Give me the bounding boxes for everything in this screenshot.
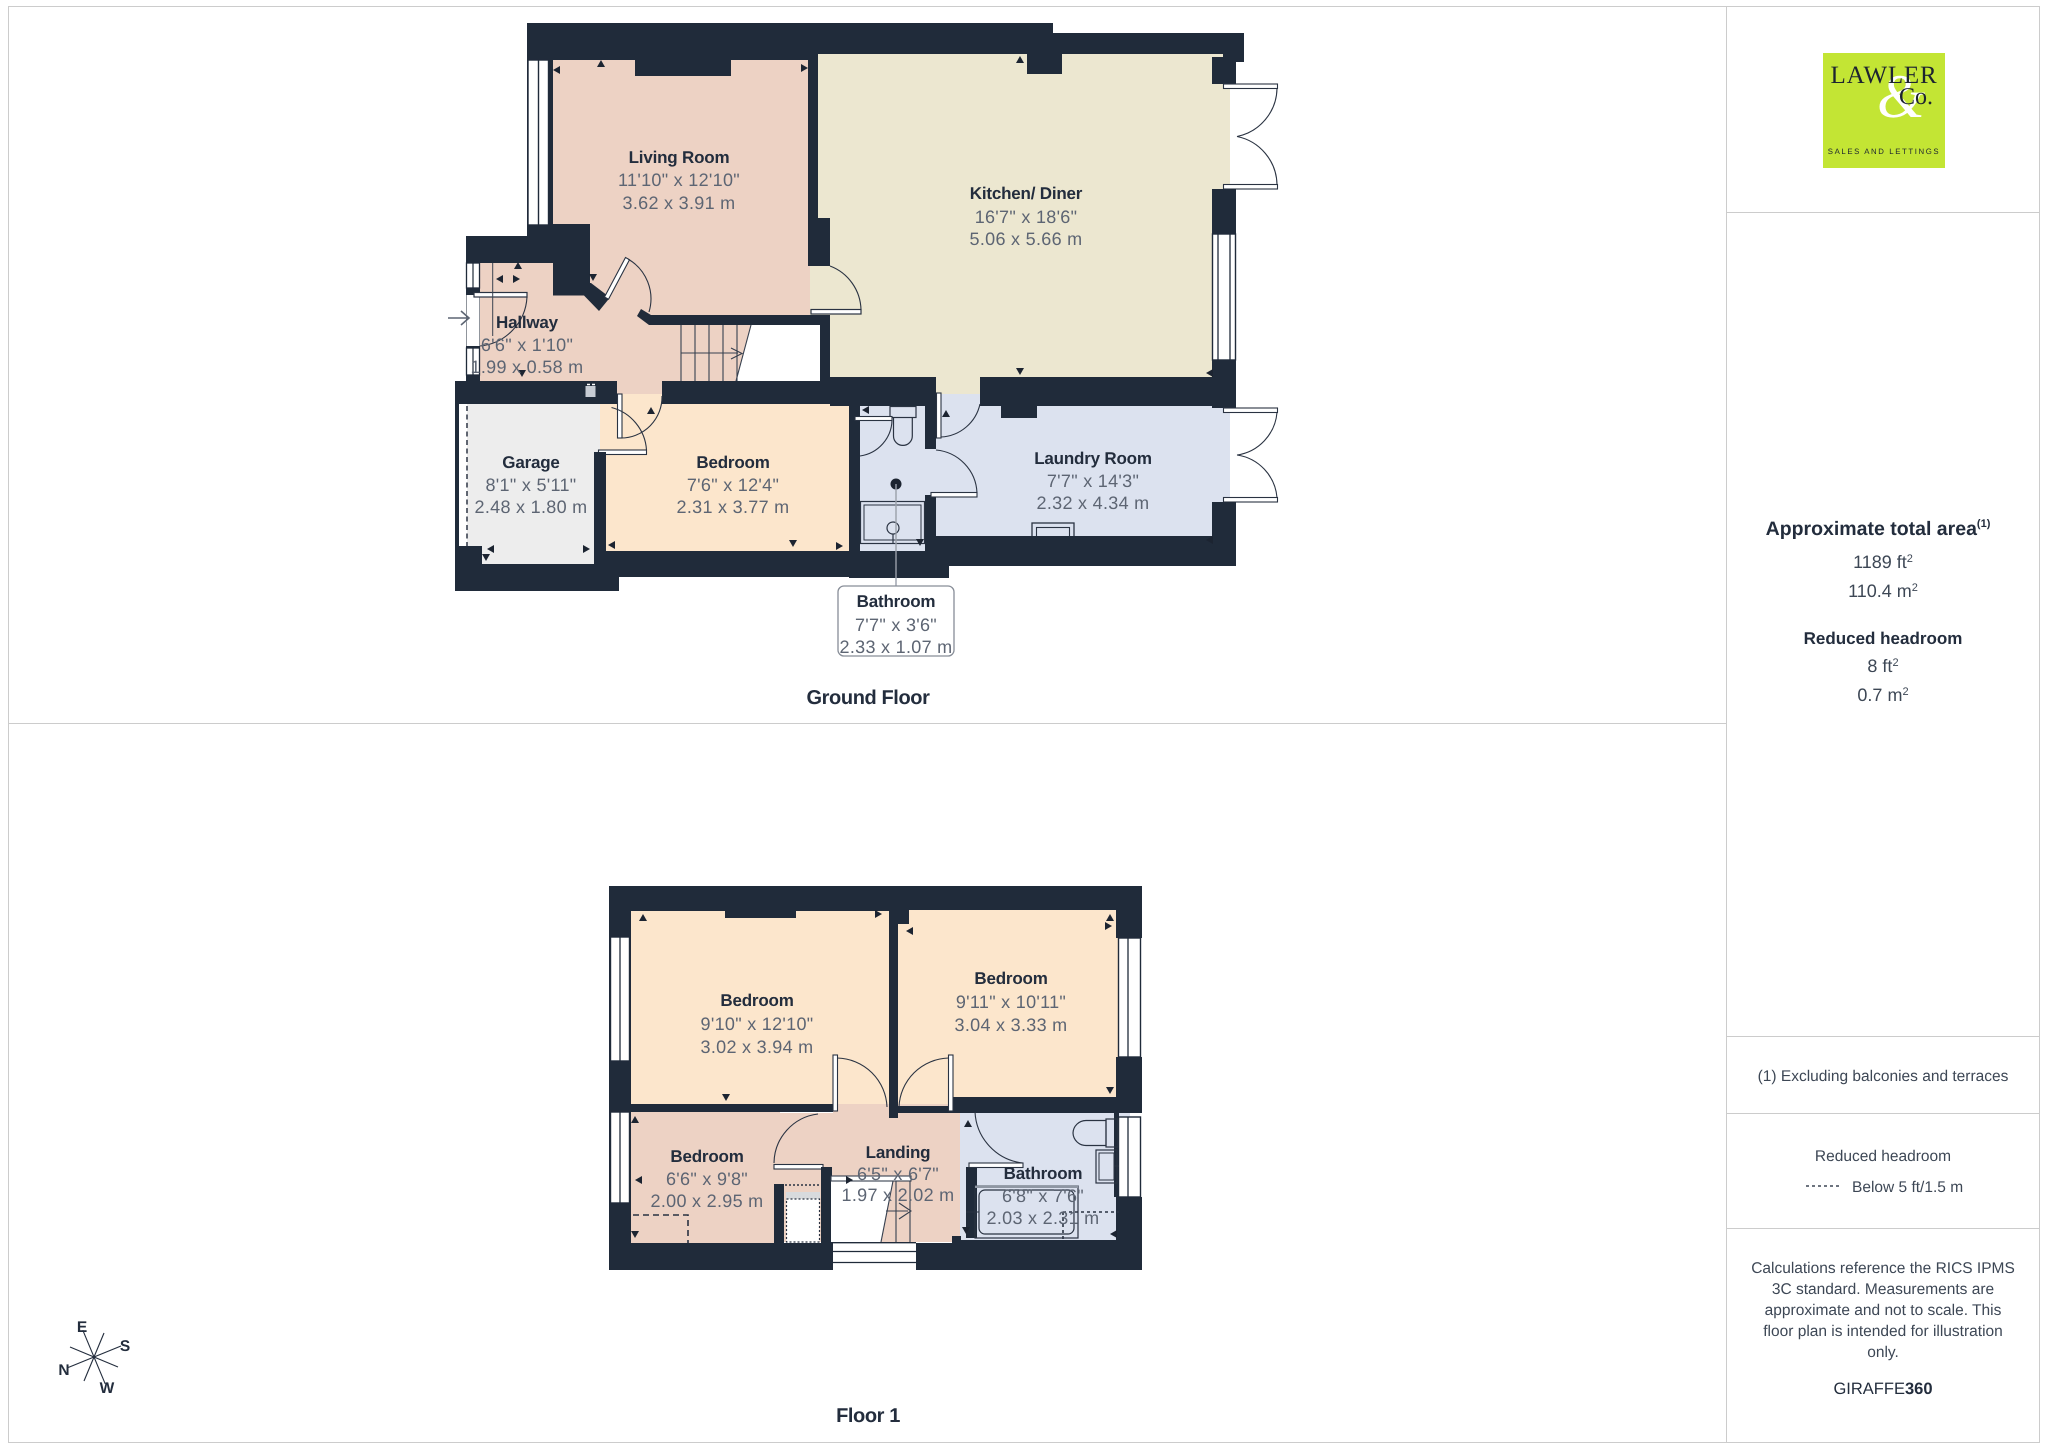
svg-text:Living Room: Living Room <box>629 148 730 167</box>
svg-text:3.02 x 3.94 m: 3.02 x 3.94 m <box>701 1037 814 1057</box>
svg-text:6'8" x 7'6": 6'8" x 7'6" <box>1002 1186 1084 1206</box>
svg-text:Bedroom: Bedroom <box>974 969 1047 988</box>
svg-text:2.33 x 1.07 m: 2.33 x 1.07 m <box>840 637 953 657</box>
svg-text:Floor 1: Floor 1 <box>836 1405 900 1427</box>
svg-text:W: W <box>100 1380 115 1397</box>
svg-text:Below 5 ft/1.5 m: Below 5 ft/1.5 m <box>1852 1179 1963 1196</box>
svg-text:floor plan is intended for ill: floor plan is intended for illustration <box>1763 1323 2003 1340</box>
svg-text:7'7" x 3'6": 7'7" x 3'6" <box>855 615 937 635</box>
svg-text:Laundry Room: Laundry Room <box>1034 449 1152 468</box>
svg-text:Kitchen/ Diner: Kitchen/ Diner <box>970 184 1083 203</box>
svg-text:3.04 x 3.33 m: 3.04 x 3.33 m <box>955 1015 1068 1035</box>
svg-text:Bathroom: Bathroom <box>1004 1164 1083 1183</box>
svg-text:Reduced headroom: Reduced headroom <box>1804 629 1963 648</box>
svg-text:Reduced headroom: Reduced headroom <box>1815 1148 1951 1165</box>
svg-text:5.06 x 5.66 m: 5.06 x 5.66 m <box>970 229 1083 249</box>
svg-text:3C standard. Measurements are: 3C standard. Measurements are <box>1772 1281 1994 1298</box>
svg-text:N: N <box>58 1362 69 1379</box>
svg-text:(1) Excluding balconies and te: (1) Excluding balconies and terraces <box>1758 1068 2009 1085</box>
svg-text:1.97 x 2.02 m: 1.97 x 2.02 m <box>842 1185 955 1205</box>
svg-text:3.62 x 3.91 m: 3.62 x 3.91 m <box>623 193 736 213</box>
svg-text:0.7 m2: 0.7 m2 <box>1857 685 1908 705</box>
svg-text:9'11" x 10'11": 9'11" x 10'11" <box>956 992 1066 1012</box>
svg-text:Hallway: Hallway <box>496 313 559 332</box>
svg-text:Bedroom: Bedroom <box>670 1147 743 1166</box>
svg-text:7'7" x 14'3": 7'7" x 14'3" <box>1047 471 1139 491</box>
svg-text:E: E <box>77 1319 87 1336</box>
svg-text:6'5" x 6'7": 6'5" x 6'7" <box>857 1164 939 1184</box>
svg-text:9'10" x 12'10": 9'10" x 12'10" <box>701 1014 814 1034</box>
svg-text:approximate and not to scale.: approximate and not to scale. This <box>1765 1302 2002 1319</box>
svg-text:2.31 x 3.77 m: 2.31 x 3.77 m <box>677 497 790 517</box>
svg-text:Calculations reference the RIC: Calculations reference the RICS IPMS <box>1751 1260 2015 1277</box>
svg-text:2.32 x 4.34 m: 2.32 x 4.34 m <box>1037 493 1150 513</box>
svg-text:7'6" x 12'4": 7'6" x 12'4" <box>687 475 779 495</box>
svg-text:Approximate total area(1): Approximate total area(1) <box>1766 518 1991 540</box>
svg-text:SALES AND LETTINGS: SALES AND LETTINGS <box>1828 147 1940 156</box>
svg-text:11'10" x 12'10": 11'10" x 12'10" <box>618 170 740 190</box>
svg-text:1.99 x 0.58 m: 1.99 x 0.58 m <box>471 357 584 377</box>
svg-text:only.: only. <box>1867 1344 1899 1361</box>
svg-text:1189 ft2: 1189 ft2 <box>1853 552 1913 572</box>
svg-text:Bedroom: Bedroom <box>696 453 769 472</box>
svg-text:Landing: Landing <box>866 1143 931 1162</box>
svg-text:6'6" x 1'10": 6'6" x 1'10" <box>481 335 573 355</box>
svg-text:6'6" x 9'8": 6'6" x 9'8" <box>666 1169 748 1189</box>
svg-text:GIRAFFE360: GIRAFFE360 <box>1833 1380 1932 1398</box>
svg-text:S: S <box>120 1338 130 1355</box>
svg-text:Ground Floor: Ground Floor <box>807 687 931 709</box>
svg-text:2.48 x 1.80 m: 2.48 x 1.80 m <box>475 497 588 517</box>
svg-text:2.00 x 2.95 m: 2.00 x 2.95 m <box>651 1191 764 1211</box>
svg-text:110.4 m2: 110.4 m2 <box>1848 581 1918 601</box>
svg-text:Bathroom: Bathroom <box>857 592 936 611</box>
svg-text:2.03 x 2.31 m: 2.03 x 2.31 m <box>987 1208 1100 1228</box>
svg-text:Garage: Garage <box>502 453 559 472</box>
svg-text:Bedroom: Bedroom <box>720 991 793 1010</box>
svg-text:8'1" x 5'11": 8'1" x 5'11" <box>486 475 577 495</box>
svg-text:Co.: Co. <box>1899 84 1933 110</box>
svg-text:16'7" x 18'6": 16'7" x 18'6" <box>975 207 1078 227</box>
